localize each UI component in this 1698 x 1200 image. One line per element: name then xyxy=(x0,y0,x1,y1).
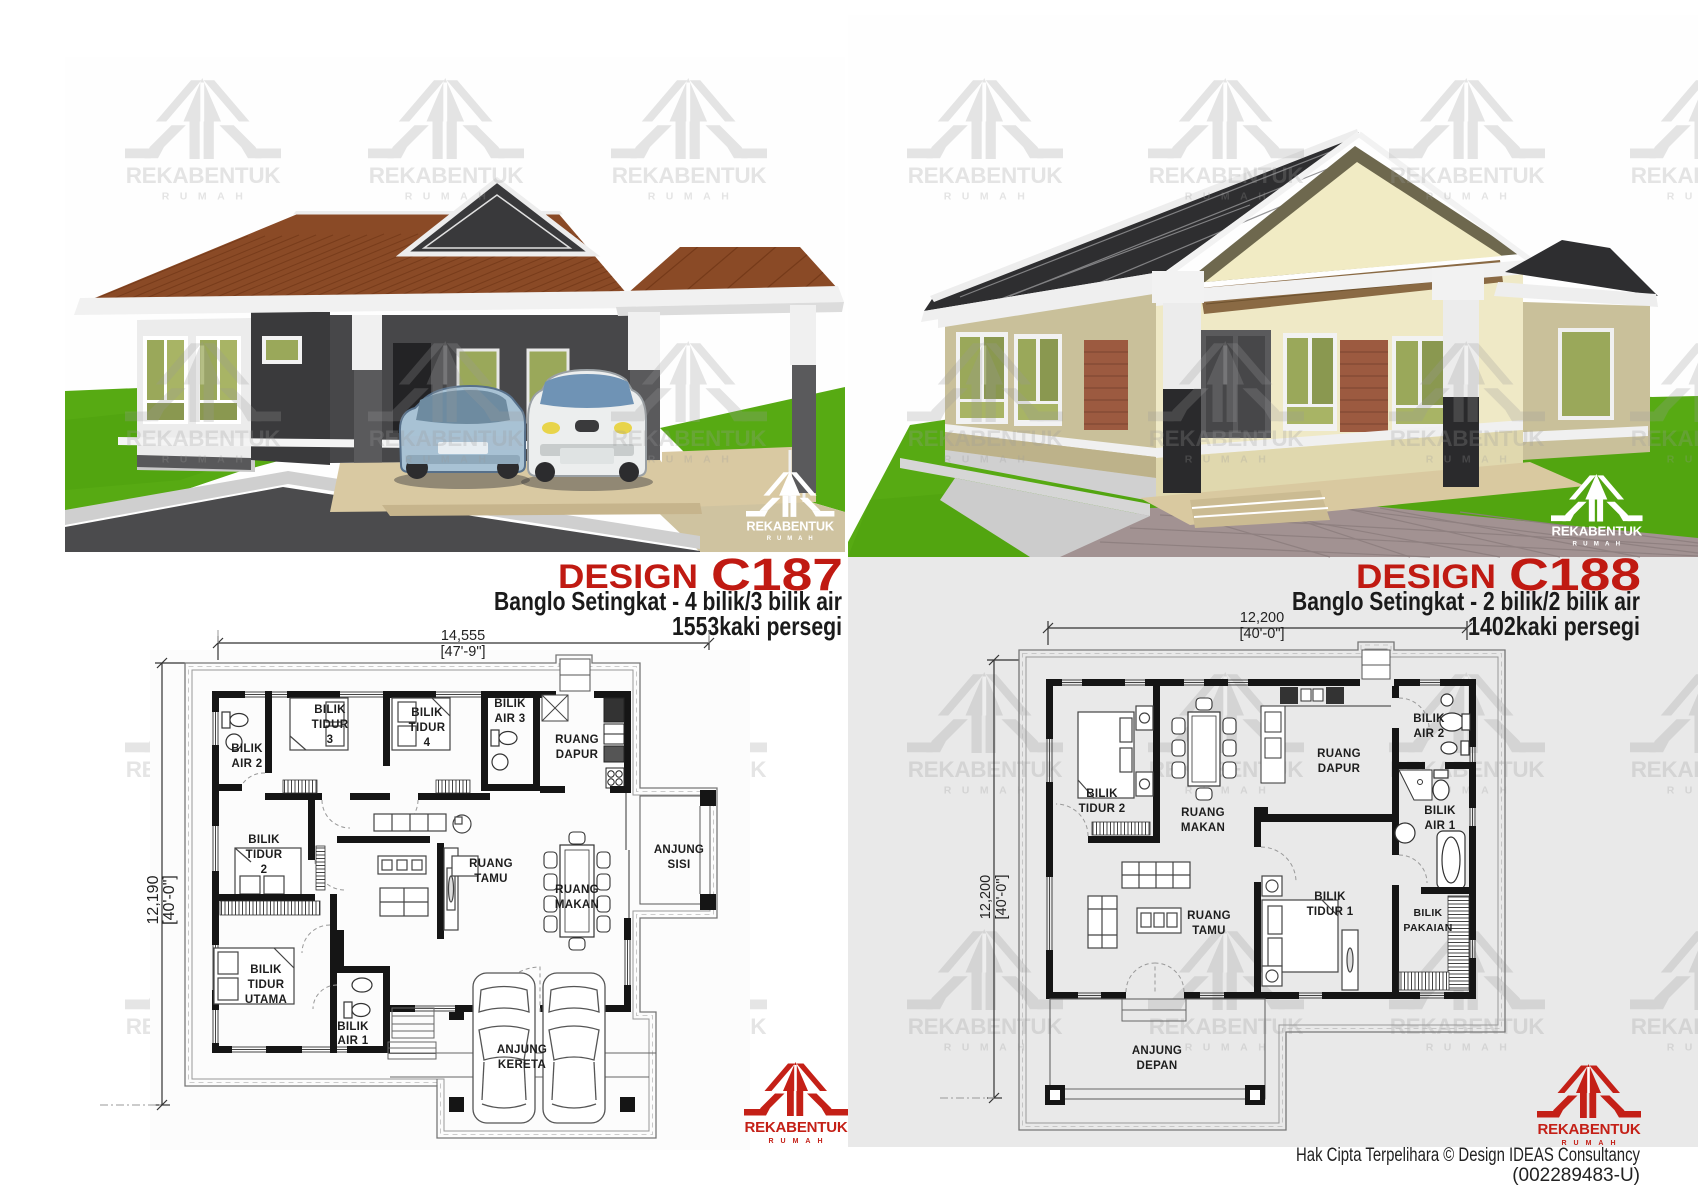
svg-text:[40'-0"]: [40'-0"] xyxy=(161,875,178,925)
svg-text:BILIK: BILIK xyxy=(248,834,280,846)
svg-text:BILIK: BILIK xyxy=(1413,713,1445,725)
svg-text:UTAMA: UTAMA xyxy=(245,994,287,1006)
svg-text:SISI: SISI xyxy=(668,859,691,871)
svg-text:DAPUR: DAPUR xyxy=(556,749,599,761)
svg-text:AIR 1: AIR 1 xyxy=(338,1035,369,1047)
svg-text:BILIK: BILIK xyxy=(1424,805,1456,817)
svg-text:12,200: 12,200 xyxy=(978,875,994,919)
svg-text:RUANG: RUANG xyxy=(555,884,599,896)
svg-text:[40'-0"]: [40'-0"] xyxy=(1240,626,1285,642)
svg-text:BILIK: BILIK xyxy=(314,704,346,716)
svg-text:BILIK: BILIK xyxy=(494,698,526,710)
svg-text:BILIK: BILIK xyxy=(1314,891,1346,903)
svg-text:BILIK: BILIK xyxy=(250,964,282,976)
svg-text:BILIK: BILIK xyxy=(231,743,263,755)
svg-text:TIDUR 2: TIDUR 2 xyxy=(1079,803,1126,815)
svg-text:AIR 3: AIR 3 xyxy=(495,713,526,725)
svg-text:KERETA: KERETA xyxy=(498,1059,546,1071)
svg-text:ANJUNG: ANJUNG xyxy=(654,844,704,856)
svg-text:TIDUR: TIDUR xyxy=(409,722,446,734)
svg-text:2: 2 xyxy=(261,864,268,876)
svg-text:PAKAIAN: PAKAIAN xyxy=(1403,922,1452,934)
svg-text:12,190: 12,190 xyxy=(145,875,162,924)
svg-text:RUANG: RUANG xyxy=(1181,807,1225,819)
svg-text:RUANG: RUANG xyxy=(555,734,599,746)
svg-text:TIDUR: TIDUR xyxy=(246,849,283,861)
svg-text:BILIK: BILIK xyxy=(1086,788,1118,800)
svg-text:RUANG: RUANG xyxy=(1317,748,1361,760)
svg-text:Hak Cipta Terpelihara © Desig: Hak Cipta Terpelihara © Design IDEAS Con… xyxy=(1296,1145,1640,1166)
svg-text:12,200: 12,200 xyxy=(1240,610,1284,626)
svg-text:DAPUR: DAPUR xyxy=(1318,763,1361,775)
svg-text:RUANG: RUANG xyxy=(1187,910,1231,922)
svg-text:4: 4 xyxy=(424,737,431,749)
svg-text:AIR 1: AIR 1 xyxy=(1425,820,1456,832)
svg-text:BILIK: BILIK xyxy=(1414,907,1443,919)
svg-text:TAMU: TAMU xyxy=(474,873,508,885)
svg-text:1553kaki persegi: 1553kaki persegi xyxy=(672,611,842,641)
svg-text:MAKAN: MAKAN xyxy=(555,899,599,911)
svg-text:DEPAN: DEPAN xyxy=(1137,1060,1178,1072)
svg-text:MAKAN: MAKAN xyxy=(1181,822,1225,834)
svg-text:[47'-9"]: [47'-9"] xyxy=(441,644,486,660)
svg-text:RUANG: RUANG xyxy=(469,858,513,870)
svg-text:TIDUR 1: TIDUR 1 xyxy=(1307,906,1354,918)
svg-text:BILIK: BILIK xyxy=(411,707,443,719)
svg-text:14,555: 14,555 xyxy=(441,628,485,644)
svg-text:[40'-0"]: [40'-0"] xyxy=(994,875,1010,920)
svg-text:(002289483-U): (002289483-U) xyxy=(1512,1165,1640,1186)
svg-text:TIDUR: TIDUR xyxy=(248,979,285,991)
svg-text:ANJUNG: ANJUNG xyxy=(497,1044,547,1056)
svg-text:1402kaki persegi: 1402kaki persegi xyxy=(1468,611,1640,641)
svg-text:TIDUR: TIDUR xyxy=(312,719,349,731)
svg-text:AIR 2: AIR 2 xyxy=(1414,728,1445,740)
svg-text:3: 3 xyxy=(327,734,334,746)
svg-text:AIR 2: AIR 2 xyxy=(232,758,263,770)
svg-text:TAMU: TAMU xyxy=(1192,925,1226,937)
svg-text:BILIK: BILIK xyxy=(337,1021,369,1033)
svg-text:ANJUNG: ANJUNG xyxy=(1132,1045,1182,1057)
